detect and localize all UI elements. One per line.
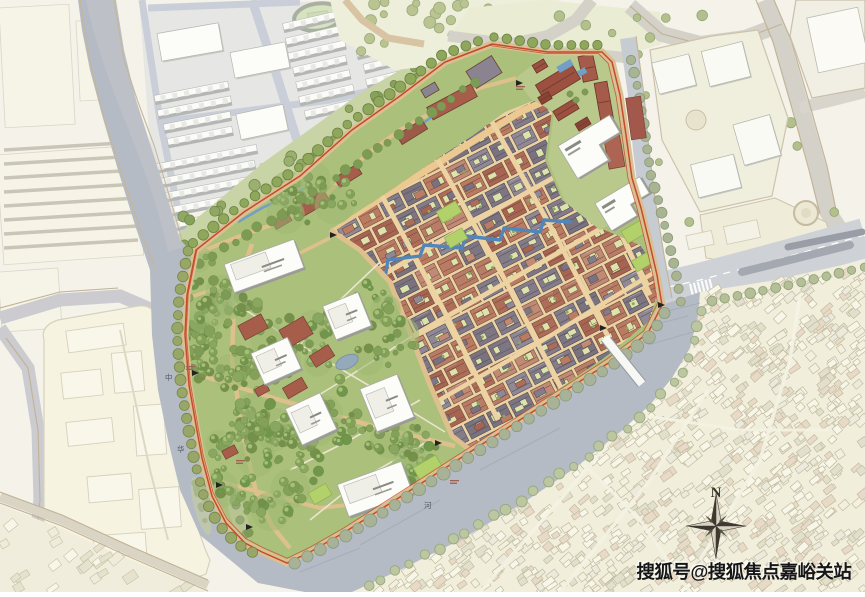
svg-text:搜狐号@搜狐焦点嘉峪关站: 搜狐号@搜狐焦点嘉峪关站 <box>637 561 852 582</box>
svg-text:河: 河 <box>424 501 432 510</box>
svg-text:华: 华 <box>177 444 185 454</box>
svg-text:N: N <box>711 485 722 501</box>
svg-text:中: 中 <box>165 372 173 382</box>
